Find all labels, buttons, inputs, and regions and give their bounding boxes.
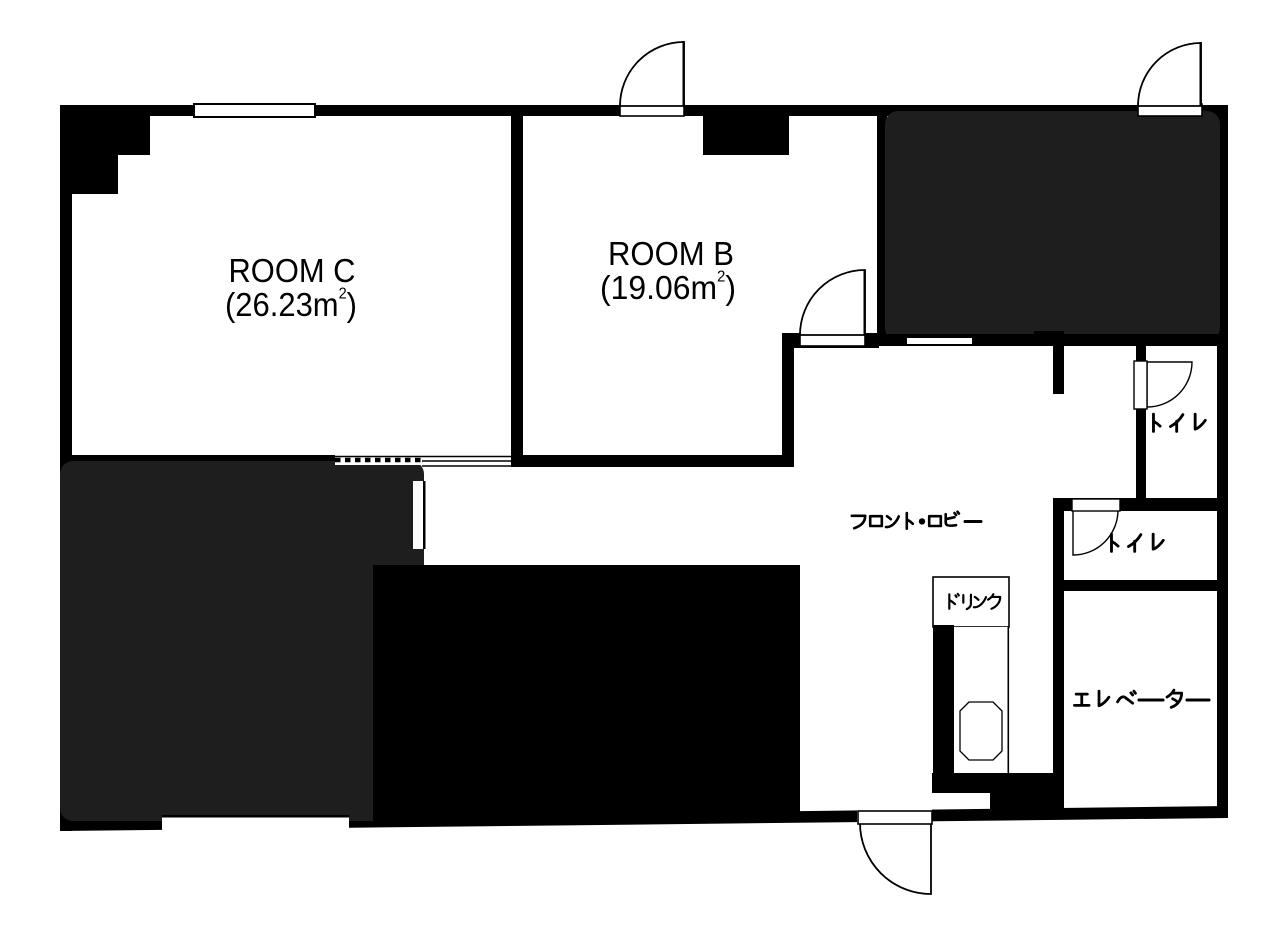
svg-text:ROOM B: ROOM B (608, 235, 734, 272)
svg-text:ROOM C: ROOM C (229, 252, 356, 289)
svg-text:(26.23m2): (26.23m2) (225, 286, 357, 324)
svg-text:(19.06m2): (19.06m2) (600, 269, 736, 307)
